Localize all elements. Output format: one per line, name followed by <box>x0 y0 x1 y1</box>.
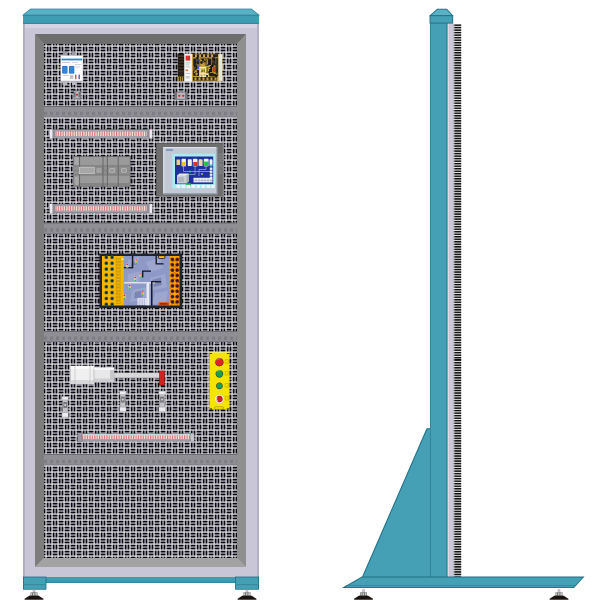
svg-text:TOUCH: TOUCH <box>217 153 223 175</box>
